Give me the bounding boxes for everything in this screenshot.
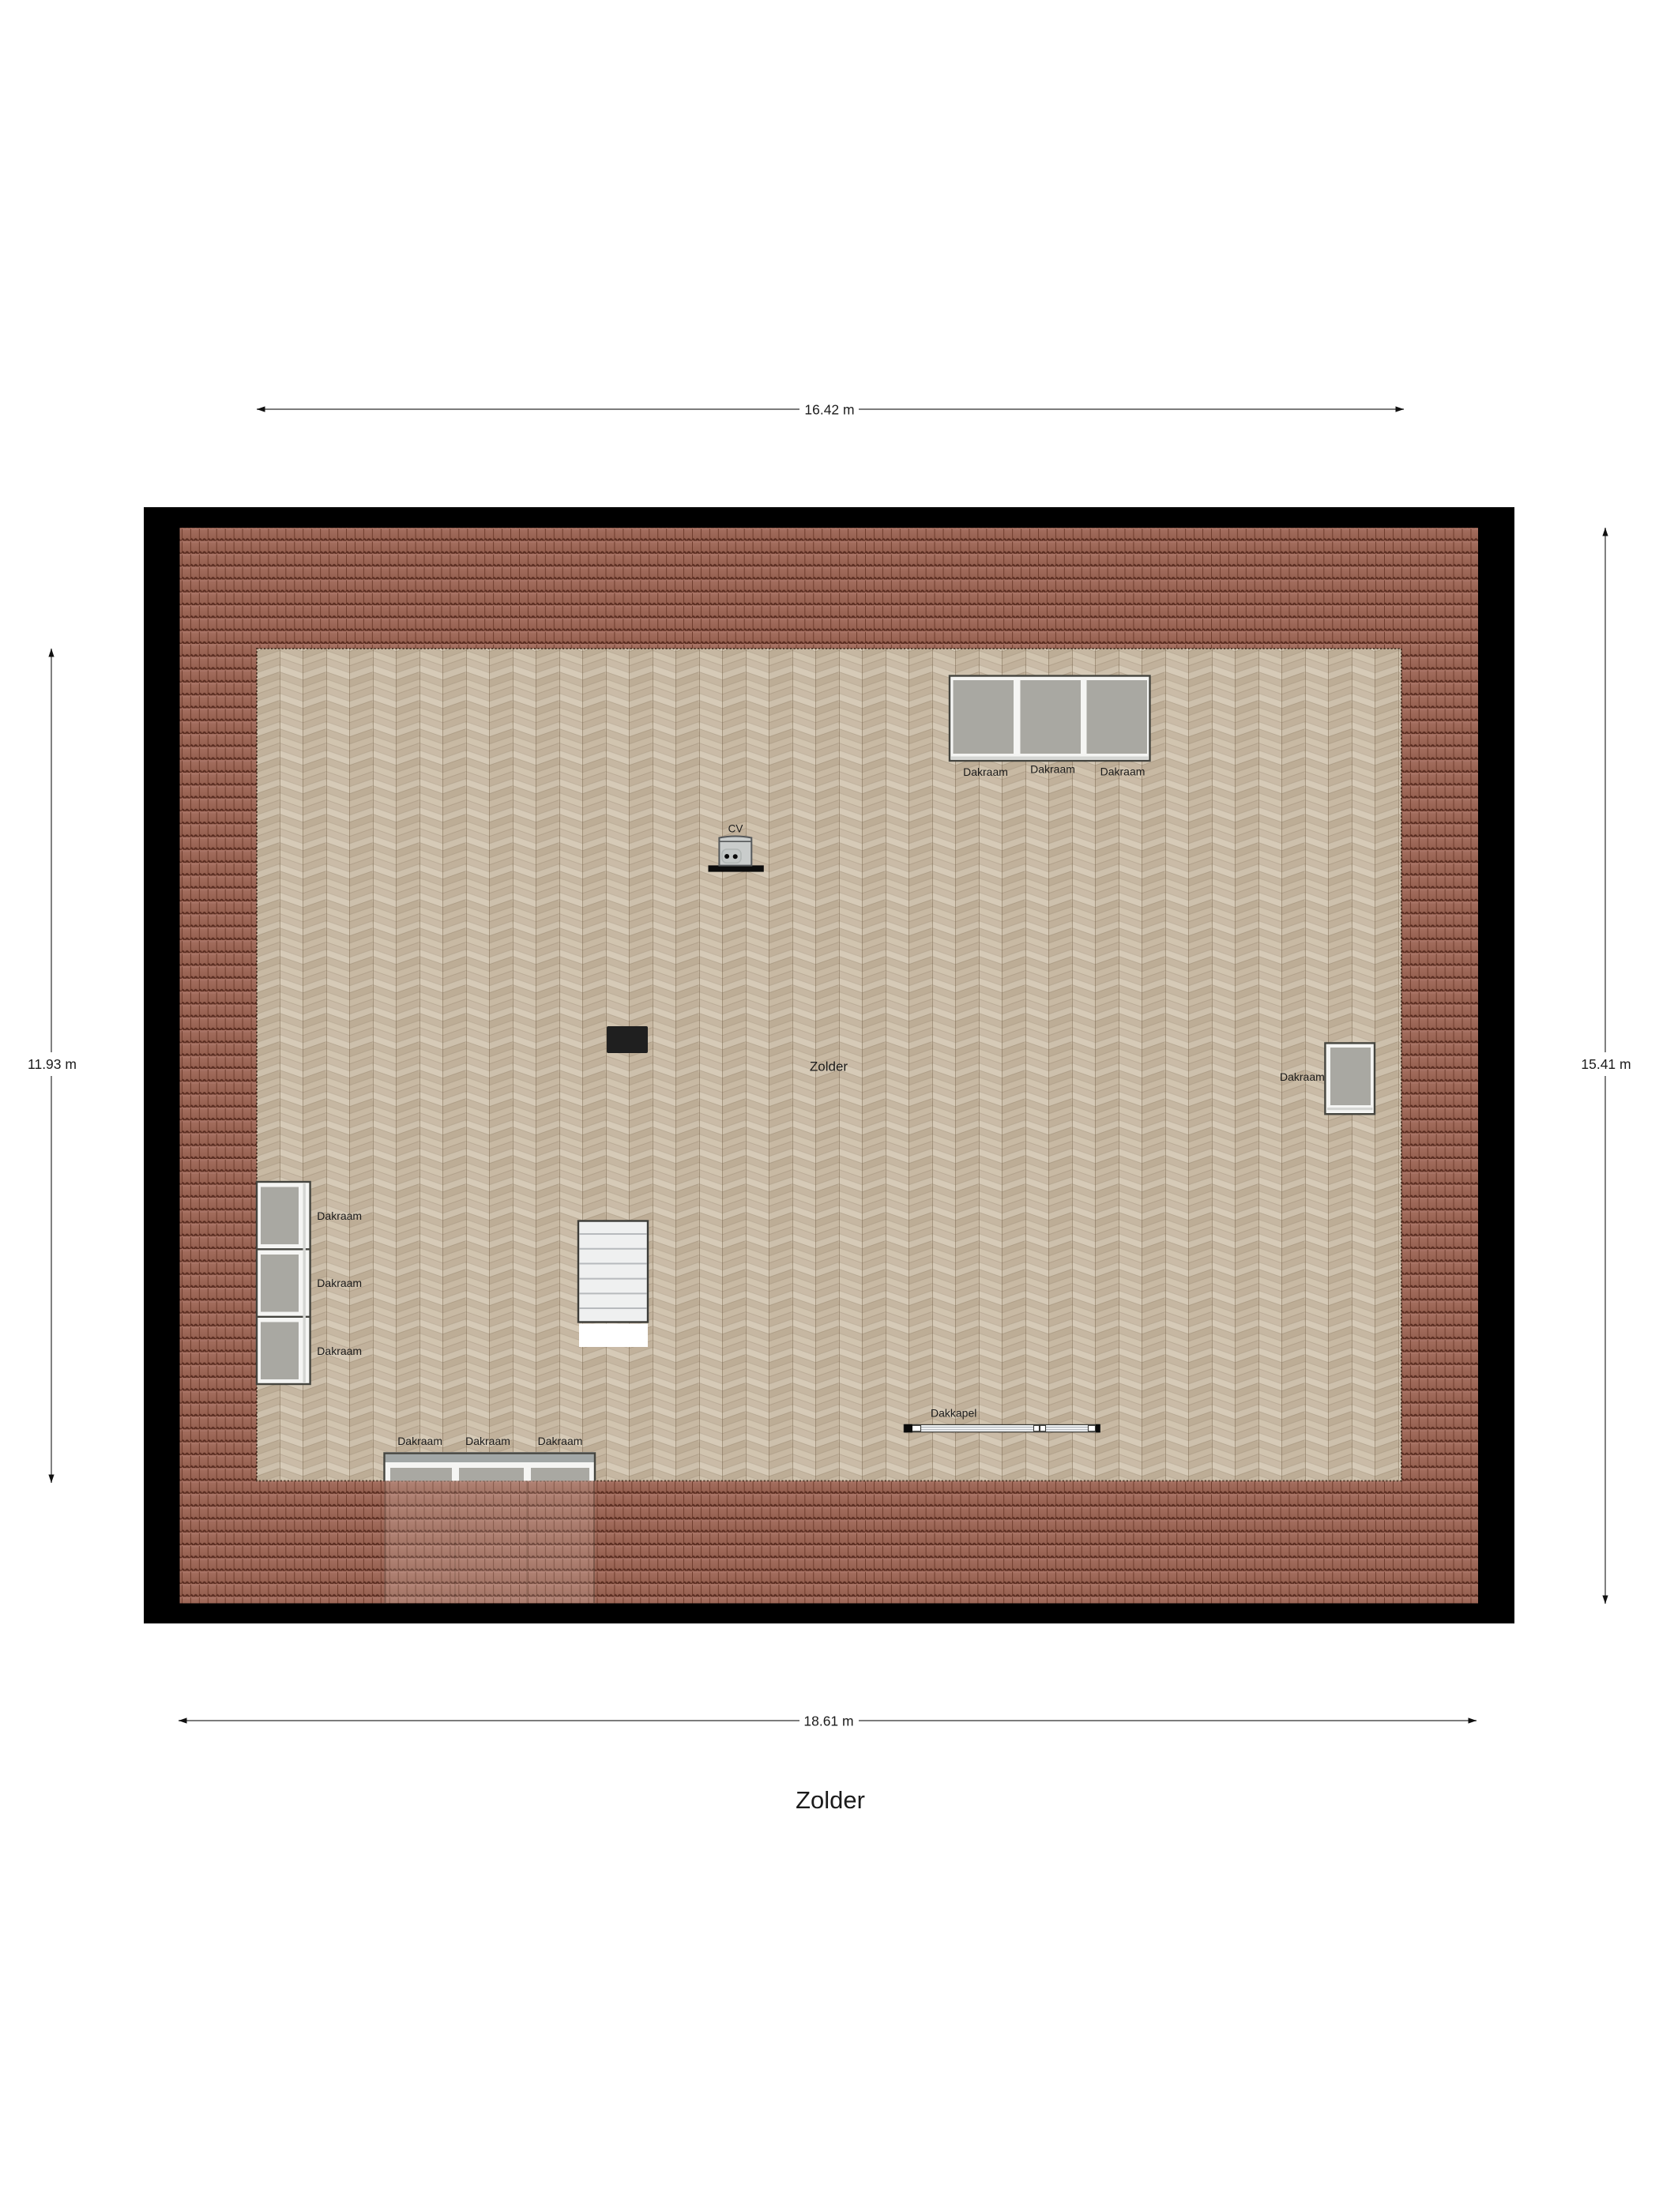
svg-text:Dakraam: Dakraam [317, 1209, 362, 1222]
svg-text:Zolder: Zolder [810, 1059, 848, 1074]
svg-text:18.61 m: 18.61 m [803, 1714, 853, 1729]
svg-text:Dakraam: Dakraam [317, 1345, 362, 1357]
svg-text:Dakraam: Dakraam [1100, 765, 1145, 777]
svg-text:Dakraam: Dakraam [538, 1435, 583, 1447]
svg-text:Dakraam: Dakraam [1030, 763, 1075, 776]
svg-text:Dakkapel: Dakkapel [931, 1407, 976, 1420]
svg-text:15.41 m: 15.41 m [1581, 1056, 1631, 1072]
svg-text:11.93 m: 11.93 m [28, 1056, 77, 1072]
svg-text:Dakraam: Dakraam [465, 1435, 510, 1447]
svg-text:Zolder: Zolder [796, 1786, 865, 1814]
svg-text:Dakraam: Dakraam [397, 1435, 442, 1447]
svg-text:16.42 m: 16.42 m [804, 402, 854, 418]
svg-text:Dakraam: Dakraam [317, 1277, 362, 1289]
svg-text:Dakraam: Dakraam [1280, 1070, 1325, 1083]
svg-text:Dakraam: Dakraam [963, 766, 1008, 778]
svg-text:CV: CV [728, 823, 743, 835]
